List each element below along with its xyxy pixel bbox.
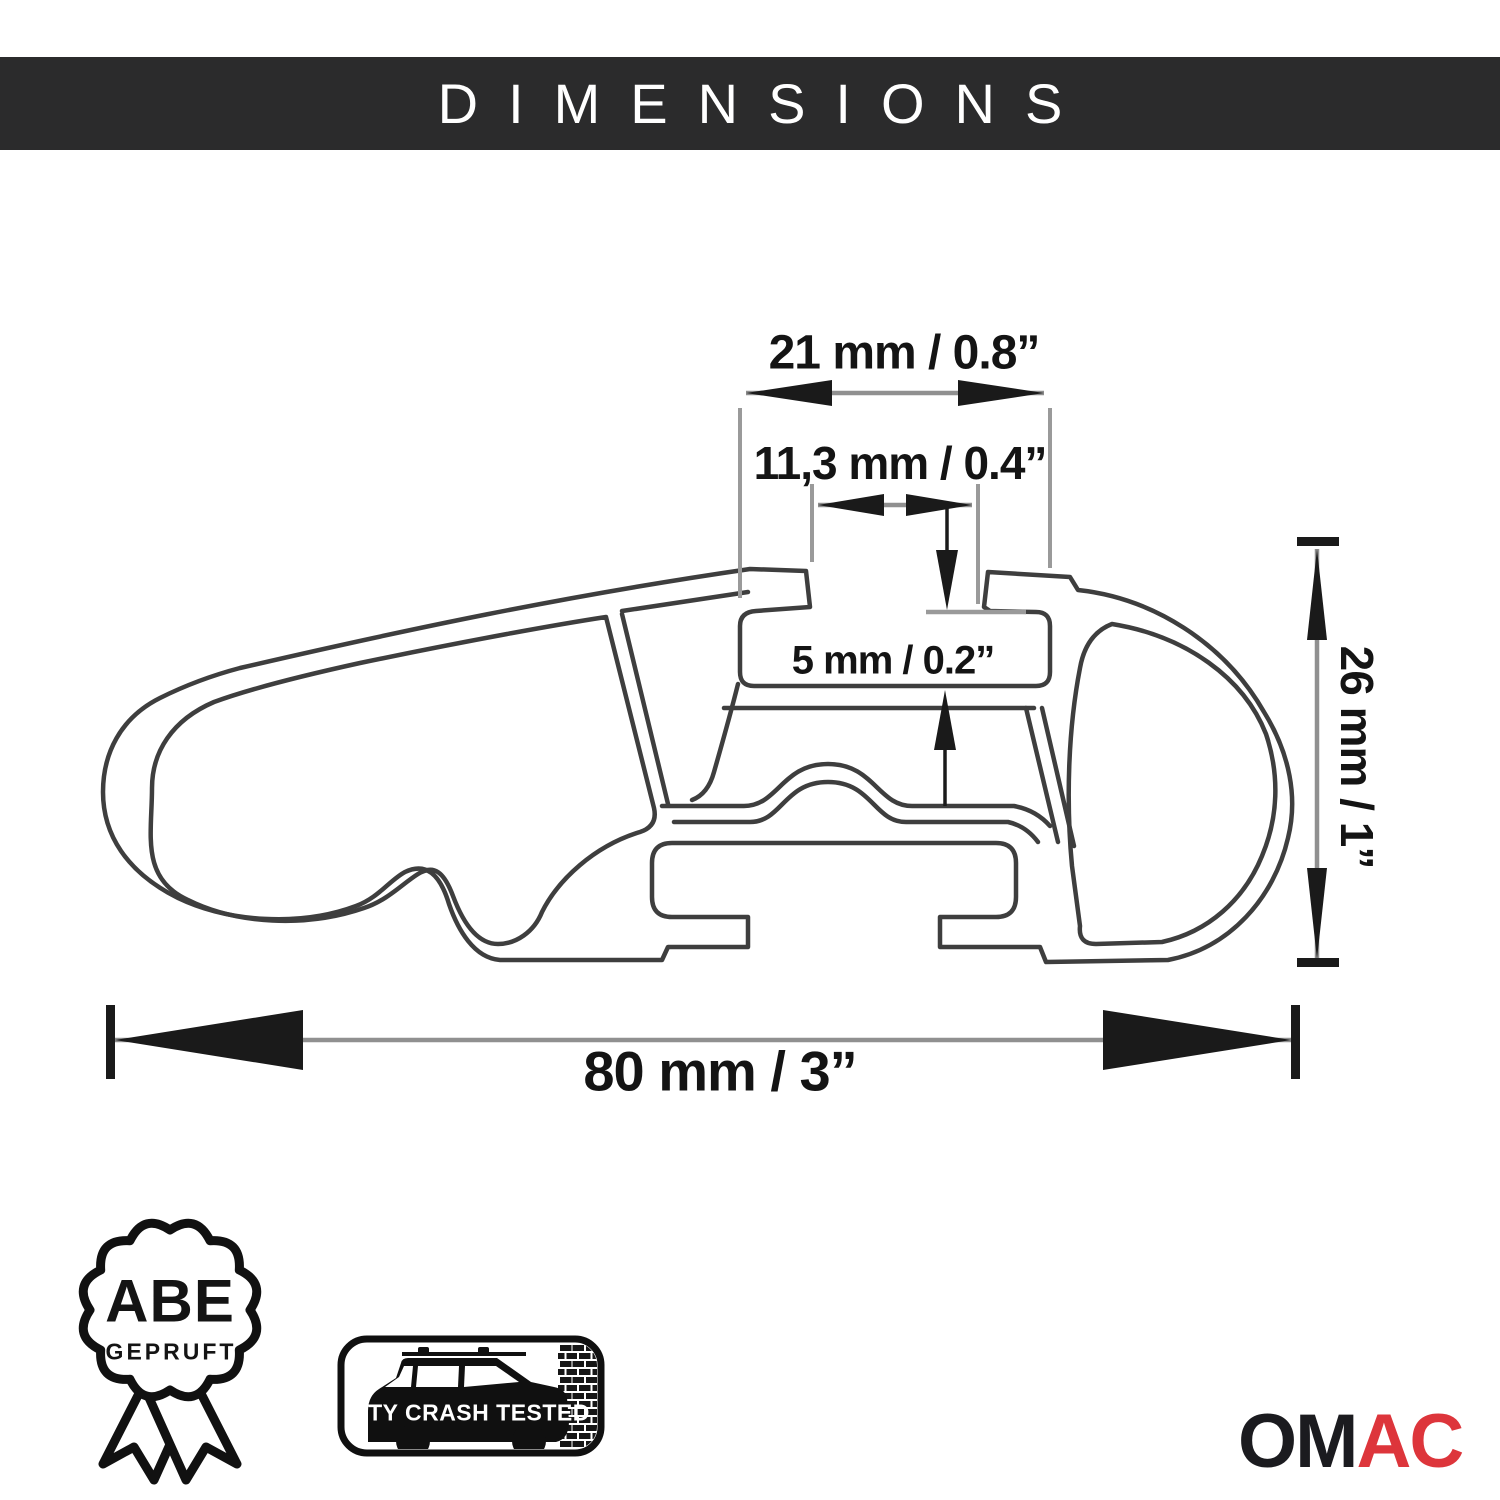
roof-rack-foot: [418, 1347, 429, 1354]
arrowhead-up: [934, 690, 956, 750]
arrowhead-down: [1307, 868, 1327, 959]
profile-outer-contour: [103, 569, 1292, 962]
arrowhead-left: [746, 380, 832, 406]
dimension-label-channel-width: 21 mm / 0.8”: [769, 326, 1040, 381]
dimension-label-profile-height: 26 mm / 1”: [1330, 646, 1384, 869]
arrowhead-up: [1307, 549, 1327, 640]
city-crash-tested-car-icon: [341, 1339, 601, 1458]
brand-logo: OMAC: [1238, 1404, 1462, 1480]
dim-tick: [1297, 958, 1339, 967]
dim-tick: [1291, 1005, 1300, 1079]
product-dimensions-image: { "header": { "title": "DIMENSIONS" }, "…: [0, 0, 1500, 1500]
brand-logo-black-part: OM: [1238, 1399, 1356, 1484]
dim-tick: [1297, 537, 1339, 546]
profile-top-wall-inner: [622, 592, 748, 611]
car-window: [416, 1366, 459, 1387]
arrowhead-right: [906, 494, 972, 516]
abe-badge-subtitle: GEPRUFT: [106, 1339, 237, 1366]
abe-badge-title: ABE: [105, 1267, 235, 1336]
arrowhead-down: [936, 550, 958, 610]
arrowhead-left: [818, 494, 884, 516]
dimension-label-slot-depth: 5 mm / 0.2”: [792, 639, 994, 684]
dimension-label-profile-width: 80 mm / 3”: [583, 1039, 856, 1104]
city-crash-tested-label: CITY CRASH TESTED: [344, 1400, 590, 1427]
profile-bell-wall-outer: [662, 764, 1050, 826]
arrowhead-left: [115, 1010, 303, 1070]
dim-tick: [106, 1005, 115, 1079]
arrowhead-right: [958, 380, 1044, 406]
profile-nose-cavity: [151, 617, 655, 944]
arrowhead-right: [1103, 1010, 1291, 1070]
brand-logo-red-part: AC: [1356, 1399, 1462, 1484]
profile-bell-wall-inner: [674, 782, 1038, 842]
profile-cap-cavity: [1069, 624, 1276, 944]
profile-left-wall: [692, 684, 738, 800]
dimension-lines: [106, 380, 1339, 1079]
roof-rack-foot: [478, 1347, 489, 1354]
dimension-label-slot-opening: 11,3 mm / 0.4”: [754, 436, 1047, 490]
crossbar-profile-drawing: [103, 569, 1292, 962]
